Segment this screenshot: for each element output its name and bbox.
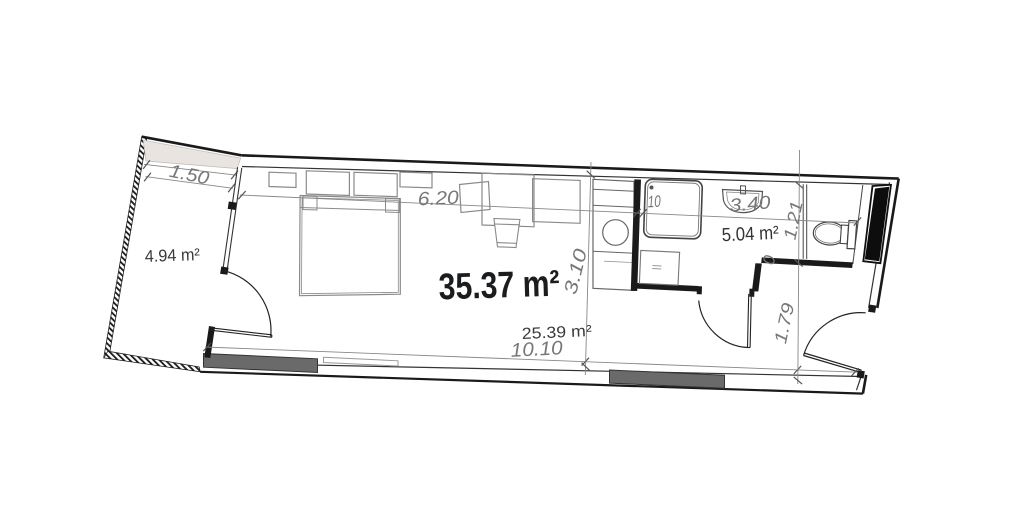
svg-text:4.94 m²: 4.94 m²: [144, 245, 200, 266]
svg-text:5.04 m²: 5.04 m²: [721, 223, 779, 246]
svg-text:35.37 m²: 35.37 m²: [438, 263, 560, 308]
svg-text:6.20: 6.20: [417, 188, 459, 211]
svg-text:25.39 m²: 25.39 m²: [521, 323, 592, 343]
svg-text:3.40: 3.40: [729, 191, 772, 216]
svg-text:10: 10: [647, 193, 662, 212]
